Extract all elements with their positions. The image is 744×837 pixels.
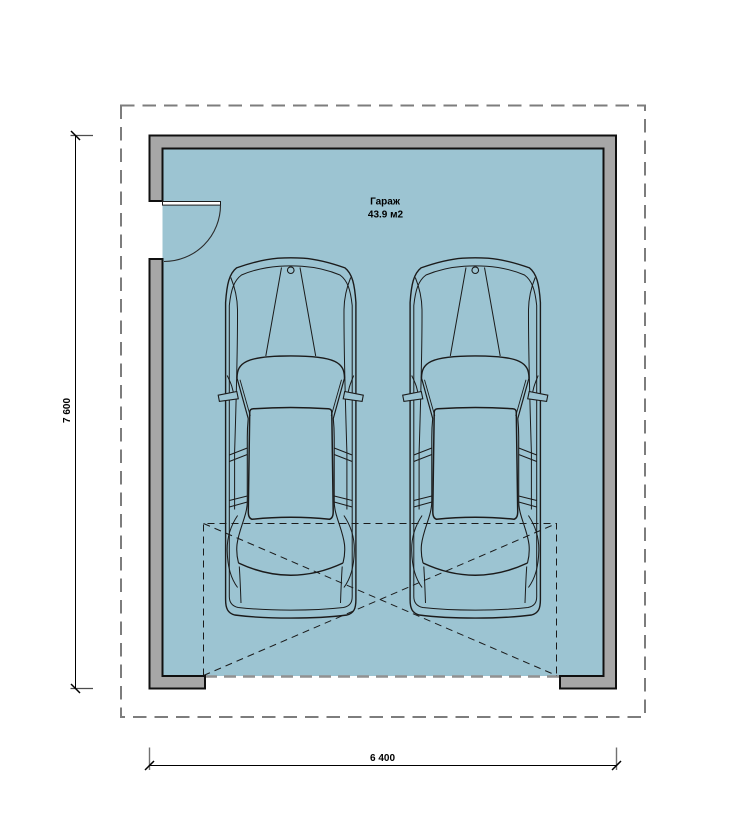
svg-text:43.9 м2: 43.9 м2 — [368, 210, 404, 221]
svg-text:Гараж: Гараж — [370, 197, 401, 208]
svg-text:6 400: 6 400 — [370, 753, 395, 764]
svg-text:7 600: 7 600 — [62, 398, 73, 423]
